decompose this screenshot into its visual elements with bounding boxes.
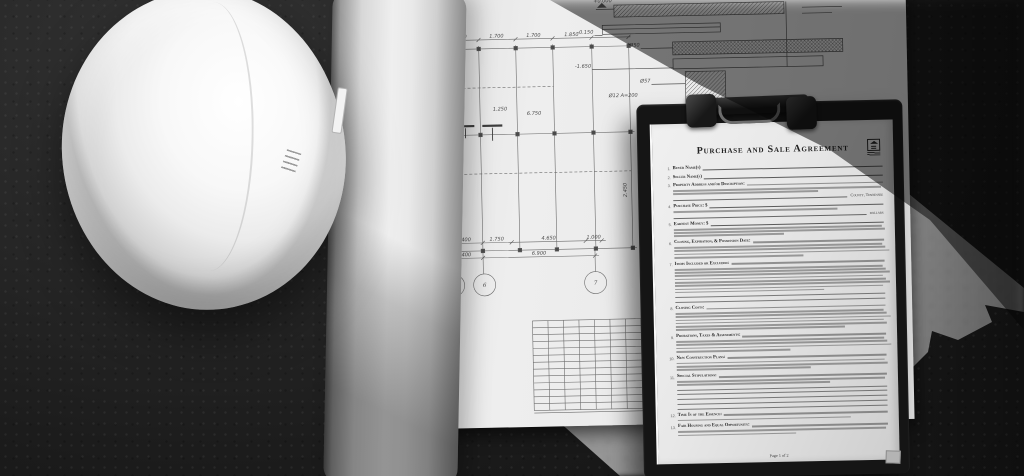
clause-label: Special Stipulations: [677, 373, 717, 379]
svg-text:Ø12 A=200: Ø12 A=200 [608, 92, 638, 100]
clause-label: Closing, Expiration, & Possession Date: [674, 239, 751, 246]
clause-12: 12.Time Is of the Essence: [669, 408, 888, 421]
clause-label: Earnest Money: $ [674, 221, 709, 227]
clause-label: Seller Name(s) [673, 174, 702, 180]
svg-text:6.900: 6.900 [532, 251, 546, 257]
svg-text:1.700: 1.700 [526, 33, 540, 39]
clause-8: 8.Closing Costs: [666, 302, 885, 332]
clause-13: 13.Fair Housing and Equal Opportunity: [669, 420, 888, 437]
svg-text:-1.650: -1.650 [575, 64, 591, 70]
clause-4: 4.Purchase Price: $dollars [664, 200, 883, 219]
clause-label: Buyer Name(s) [673, 165, 701, 171]
page-number: Page 1 of 2 [659, 450, 900, 460]
clip-pad-left [686, 94, 717, 128]
clause-list: 1.Buyer Name(s)2.Seller Name(s)3.Propert… [664, 162, 889, 437]
svg-text:6.750: 6.750 [527, 111, 541, 117]
clause-label: Fair Housing and Equal Opportunity: [678, 423, 750, 430]
photo-stage: 1.700 1.700 1.700 1.850 2.600 7.500 2.45… [0, 0, 1024, 476]
rolled-blueprint [323, 0, 466, 476]
svg-text:1.700: 1.700 [489, 33, 503, 39]
svg-text:2.450: 2.450 [623, 183, 629, 197]
svg-text:1.750: 1.750 [489, 236, 503, 242]
plan-ticks-squares [439, 35, 635, 261]
clause-6: 6.Closing, Expiration, & Possession Date… [665, 236, 884, 259]
paper-corner-tab [885, 450, 900, 463]
svg-text:1.250: 1.250 [493, 106, 507, 112]
svg-text:Ø57: Ø57 [639, 77, 651, 84]
clause-label: Prorations, Taxes & Assessments: [676, 333, 741, 340]
clause-label: Property Address and/or Description: [673, 182, 745, 189]
svg-text:-0.150: -0.150 [577, 30, 593, 36]
clause-11: 11.Special Stipulations: [668, 370, 888, 410]
clause-7: 7.Items Included or Excluded: [666, 257, 886, 303]
clause-label: Closing Costs: [675, 305, 704, 311]
clause-3: 3.Property Address and/or Description:Co… [664, 179, 883, 202]
clause-9: 9.Prorations, Taxes & Assessments: [667, 330, 886, 353]
svg-text:4.650: 4.650 [541, 235, 555, 241]
clause-label: Purchase Price: $ [673, 203, 707, 209]
clause-label: Time Is of the Essence: [678, 412, 722, 418]
svg-text:1.000: 1.000 [586, 234, 600, 240]
grid-bubble-6: 6 [483, 283, 487, 289]
clause-label: New Construction Plans: [677, 355, 726, 361]
clause-10: 10.New Construction Plans: [668, 351, 887, 371]
clause-5: 5.Earnest Money: $ [665, 218, 884, 238]
clause-label: Items Included or Excluded: [675, 261, 730, 268]
grid-bubble-7: 7 [594, 281, 598, 287]
